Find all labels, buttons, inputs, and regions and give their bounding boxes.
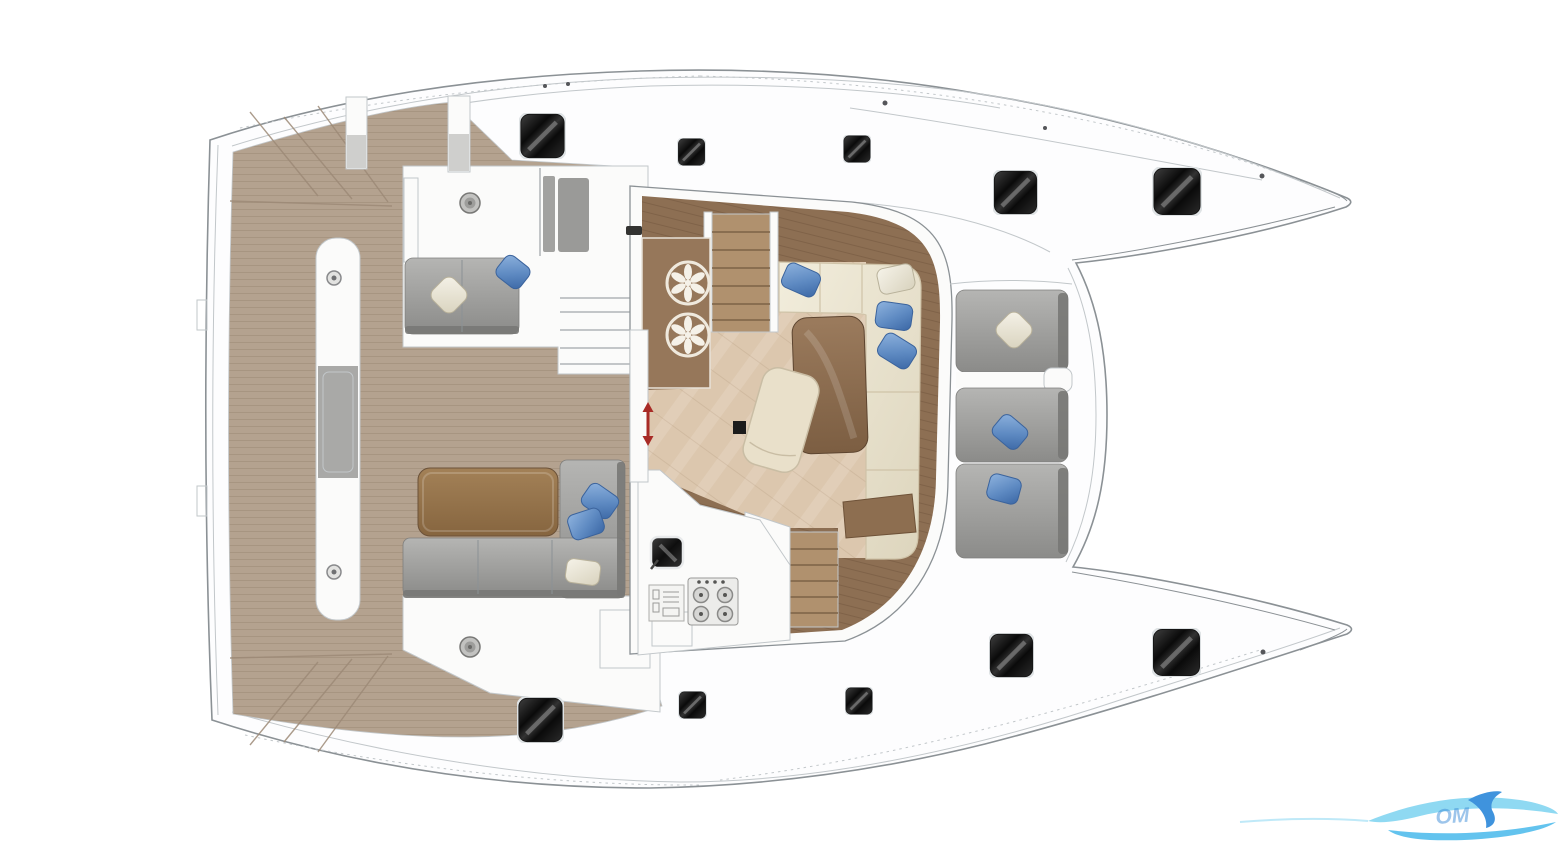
winch (460, 193, 480, 213)
galley-oven (649, 585, 684, 621)
deck-hatch-large (518, 697, 564, 743)
blue-pillow (874, 301, 913, 332)
table-leg (733, 421, 746, 434)
watermark-text: OM (1435, 804, 1471, 829)
deck-hatch-small (845, 687, 873, 715)
forward-cockpit-seats (950, 281, 1072, 559)
deck-hatch-small (678, 138, 706, 166)
deck-hatch-large (1152, 628, 1201, 677)
door-handle (626, 226, 642, 235)
white-pillow (564, 558, 601, 586)
sliding-door (630, 330, 648, 482)
starboard-companionway-stairs (787, 532, 838, 627)
watermark-logo: OM (1240, 791, 1558, 840)
deck-hatch-large (520, 113, 566, 159)
aft-center-bench (316, 238, 360, 620)
salon (626, 186, 952, 655)
galley-burner-icon (667, 262, 709, 304)
port-companionway-stairs (704, 212, 778, 332)
logo-wave-lower (1388, 822, 1556, 840)
deck-hatch-large (989, 633, 1034, 678)
aft-cockpit-table (418, 468, 558, 536)
deck-hatch-large (993, 170, 1038, 215)
catamaran-floorplan-image: OM (0, 0, 1560, 861)
bench-fitting (327, 565, 341, 579)
galley-stove (688, 578, 738, 625)
deck-strip-aft (448, 96, 470, 172)
helm-seat-cushion (558, 178, 589, 252)
galley-sink (651, 537, 683, 569)
nav-cabinet (843, 494, 916, 538)
deck-hatch-large (1153, 167, 1202, 216)
catamaran-floorplan: OM (197, 70, 1558, 840)
galley-island (642, 238, 710, 388)
bench-fitting (327, 271, 341, 285)
floorplan-svg: OM (0, 0, 1560, 861)
logo-fin-icon (1468, 791, 1502, 828)
galley-burner-icon (667, 314, 709, 356)
deck-strip-forward (346, 97, 367, 169)
winch (460, 637, 480, 657)
deck-hatch-small (679, 691, 707, 719)
helm-seat-cushion (543, 176, 555, 252)
deck-hatch-small (843, 135, 871, 163)
